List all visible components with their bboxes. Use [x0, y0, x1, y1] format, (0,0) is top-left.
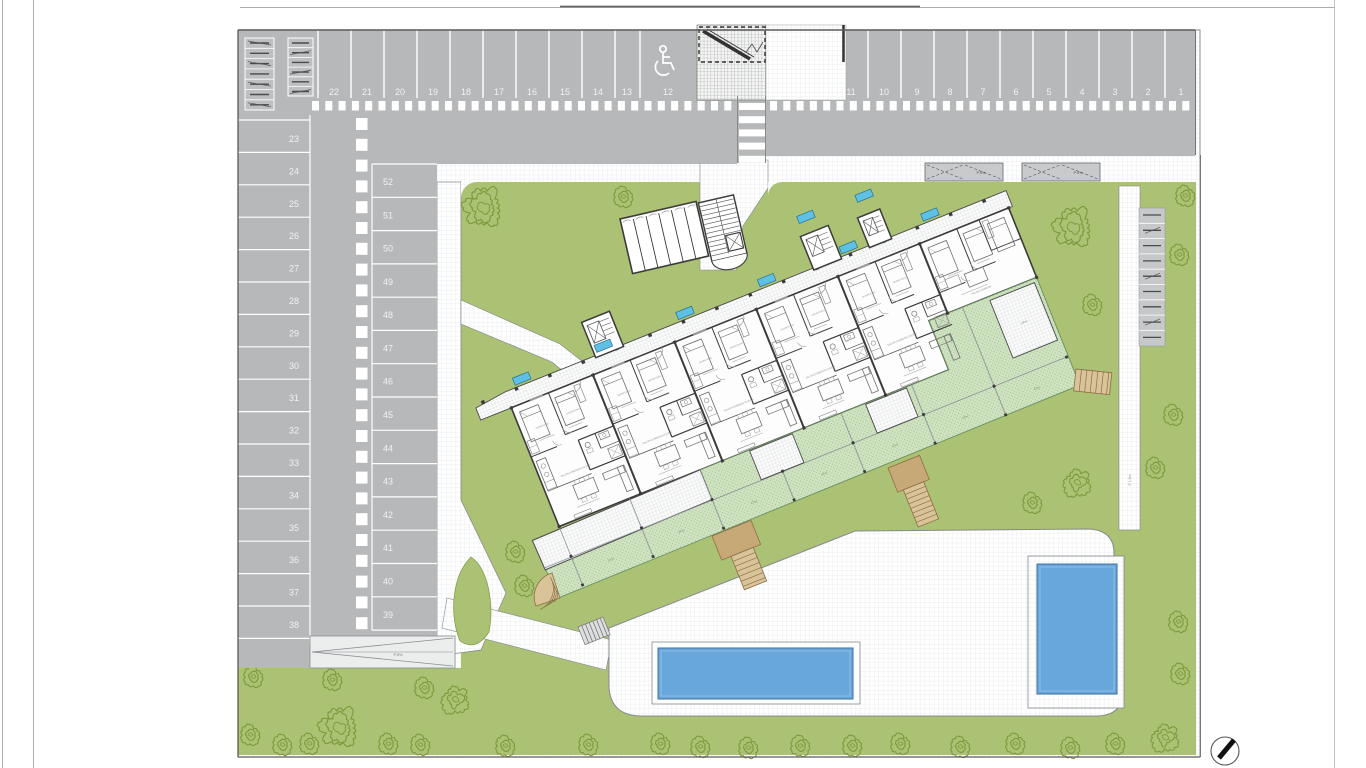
svg-text:41: 41	[383, 543, 393, 553]
svg-text:37: 37	[289, 588, 299, 598]
svg-text:36: 36	[289, 555, 299, 565]
svg-text:1: 1	[1178, 87, 1183, 97]
svg-text:35: 35	[289, 523, 299, 533]
svg-text:46: 46	[383, 377, 393, 387]
svg-text:14: 14	[593, 87, 603, 97]
svg-text:9: 9	[914, 87, 919, 97]
svg-text:27: 27	[289, 264, 299, 274]
svg-text:48: 48	[383, 310, 393, 320]
svg-text:18: 18	[461, 87, 471, 97]
svg-text:51: 51	[383, 210, 393, 220]
svg-text:13: 13	[622, 87, 632, 97]
svg-text:11: 11	[846, 87, 855, 97]
svg-text:38: 38	[289, 620, 299, 630]
svg-text:44: 44	[383, 443, 393, 453]
svg-text:2: 2	[1145, 87, 1150, 97]
svg-text:28: 28	[289, 296, 299, 306]
svg-text:39: 39	[383, 610, 393, 620]
svg-text:4: 4	[1079, 87, 1084, 97]
svg-text:25: 25	[289, 199, 299, 209]
svg-text:47: 47	[383, 343, 393, 353]
svg-text:42: 42	[383, 510, 393, 520]
svg-text:45: 45	[383, 410, 393, 420]
svg-text:5: 5	[1046, 87, 1051, 97]
svg-text:43: 43	[383, 477, 393, 487]
svg-text:21: 21	[362, 87, 372, 97]
svg-text:10: 10	[879, 87, 889, 97]
svg-text:33: 33	[289, 458, 299, 468]
svg-text:P.9%: P.9%	[976, 170, 985, 175]
svg-text:29: 29	[289, 328, 299, 338]
svg-text:8: 8	[947, 87, 952, 97]
svg-text:3: 3	[1112, 87, 1117, 97]
svg-text:P 1.5m: P 1.5m	[1128, 474, 1132, 485]
svg-text:12: 12	[663, 87, 673, 97]
svg-text:P.9%: P.9%	[393, 652, 402, 657]
svg-text:22: 22	[329, 87, 339, 97]
svg-text:34: 34	[289, 490, 299, 500]
svg-text:20: 20	[395, 87, 405, 97]
svg-text:6: 6	[1013, 87, 1018, 97]
svg-text:31: 31	[289, 393, 299, 403]
svg-text:32: 32	[289, 426, 299, 436]
svg-text:17: 17	[494, 87, 504, 97]
svg-text:24: 24	[289, 166, 299, 176]
svg-text:23: 23	[289, 134, 299, 144]
svg-text:49: 49	[383, 277, 393, 287]
svg-text:16: 16	[527, 87, 537, 97]
svg-text:30: 30	[289, 361, 299, 371]
svg-text:40: 40	[383, 577, 393, 587]
svg-text:26: 26	[289, 231, 299, 241]
svg-text:P.9%: P.9%	[1073, 170, 1082, 175]
svg-text:15: 15	[560, 87, 570, 97]
svg-text:7: 7	[980, 87, 985, 97]
svg-text:52: 52	[383, 177, 393, 187]
svg-text:50: 50	[383, 244, 393, 254]
svg-text:19: 19	[428, 87, 438, 97]
